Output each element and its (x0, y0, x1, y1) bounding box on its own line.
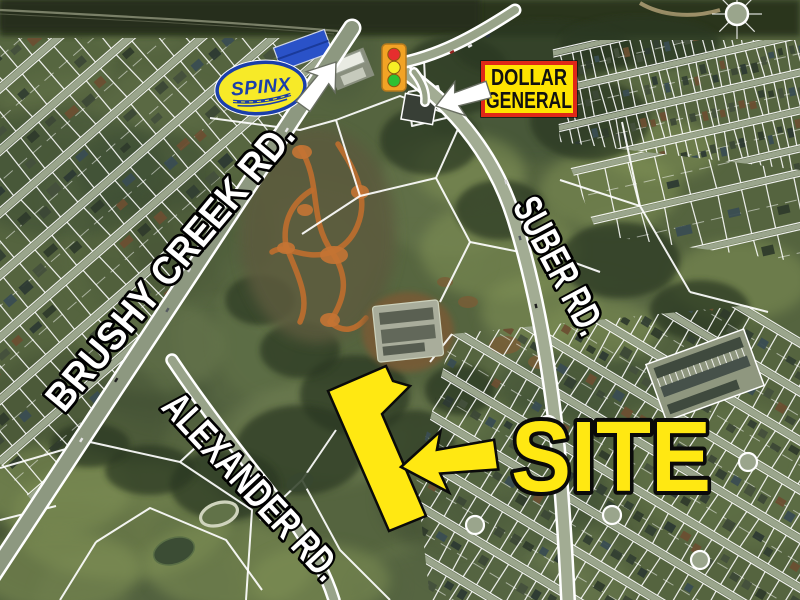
map-canvas: SITE BRUSHY CREEK RD. ALEXANDER RD. SUBE… (0, 0, 800, 600)
aerial-site-map: SITE BRUSHY CREEK RD. ALEXANDER RD. SUBE… (0, 0, 800, 600)
traffic-light-icon (382, 44, 406, 91)
dollar-general-text-line2: GENERAL (486, 87, 572, 113)
construction-pad (372, 300, 443, 363)
traffic-light-green (388, 74, 400, 86)
traffic-light-amber (388, 61, 400, 73)
site-callout-label: SITE (511, 401, 711, 513)
dollar-general-sign: DOLLAR GENERAL (481, 61, 577, 117)
traffic-light-red (388, 48, 400, 60)
